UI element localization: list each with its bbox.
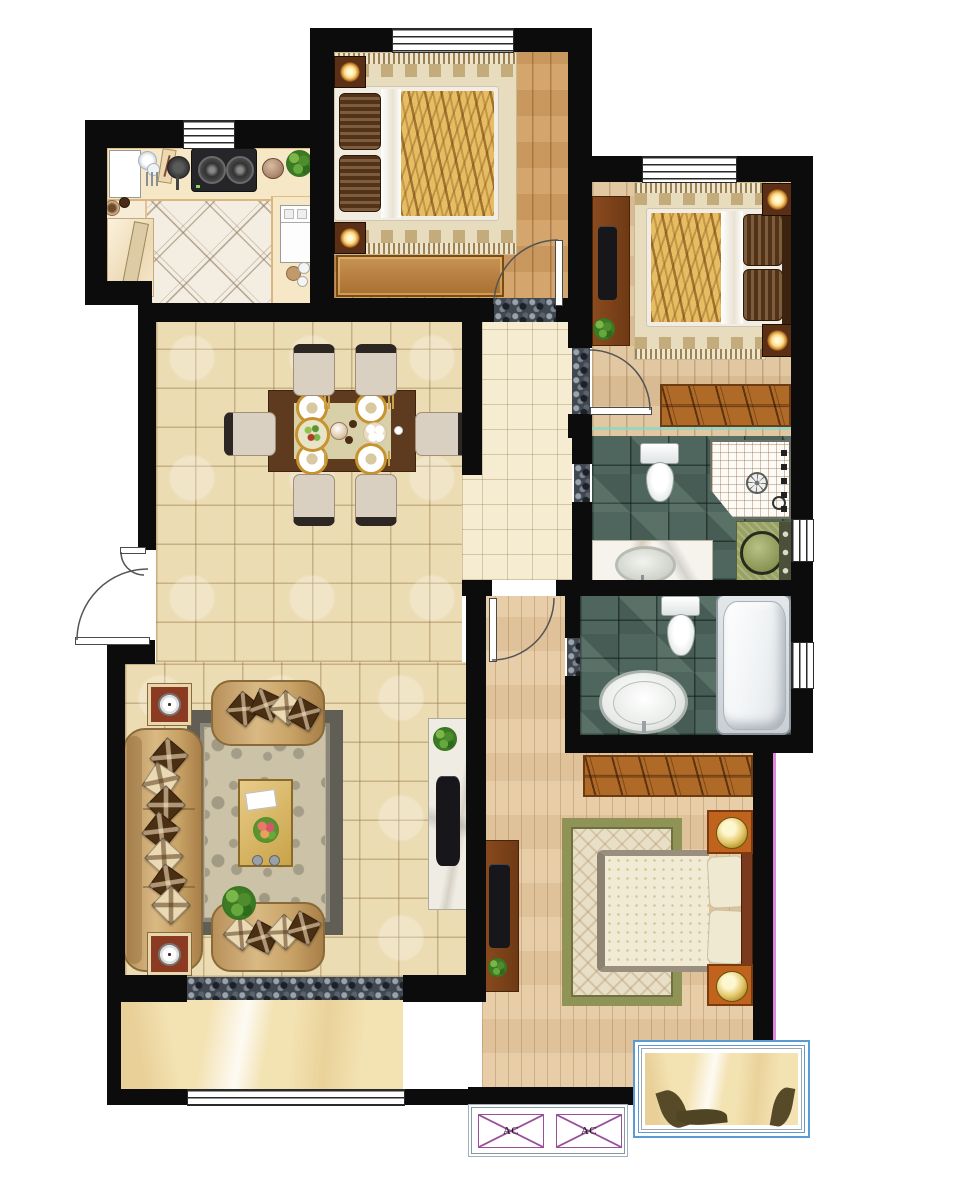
window-bathroom2 [791, 642, 814, 689]
wall-segment [107, 984, 121, 1105]
gold-lamp-icon [716, 971, 748, 1002]
living-plant-icon [222, 886, 256, 920]
small-dish-icon [394, 426, 403, 435]
toilet-tank [640, 443, 679, 464]
indicator-light-icon [196, 185, 200, 188]
wall-segment [152, 303, 334, 322]
wall-segment [568, 414, 592, 438]
bed-headboard [741, 850, 753, 974]
cabinet-plant-icon [433, 727, 457, 751]
wall-segment [462, 298, 482, 475]
washer-drum-icon [740, 531, 784, 575]
bed-right [646, 208, 793, 327]
cutlery-icon [324, 394, 326, 409]
dining-chair [224, 412, 276, 456]
window-balcony-left [187, 1089, 405, 1106]
bed-blanket-tiger [401, 91, 494, 216]
lamp-icon [340, 228, 360, 248]
threshold [494, 298, 556, 322]
apartment-floor-plan: AC AC [0, 0, 960, 1200]
dresser [336, 255, 504, 297]
bed-top [334, 86, 499, 221]
threshold [187, 977, 403, 1000]
bed-pillow-icon [339, 93, 381, 150]
wall-segment [85, 120, 107, 287]
rug-band [635, 337, 765, 349]
washing-machine [736, 521, 793, 584]
wall-segment [85, 281, 152, 305]
wardrobe [660, 384, 791, 427]
vanity-counter [592, 540, 713, 585]
cutlery-icon [392, 394, 394, 409]
bed-sheet-band [381, 89, 401, 218]
balcony-right-floor [645, 1053, 798, 1125]
salad-bowl-icon [295, 417, 330, 452]
bed-pillow-icon [743, 214, 783, 266]
decor-wheel-icon [158, 693, 181, 716]
window-bathroom1 [791, 519, 814, 562]
nightstand [762, 324, 793, 357]
lamp-icon [767, 330, 788, 351]
wall-segment [322, 28, 392, 52]
kitchen-plant-icon [286, 150, 313, 177]
kitchen-tile-floor [145, 198, 275, 307]
tv-icon [436, 776, 460, 866]
nightstand [334, 222, 366, 254]
bed-pillow-icon [339, 155, 381, 212]
dining-chair [293, 474, 335, 526]
faucet-icon [642, 721, 646, 733]
dinner-plate-icon [355, 392, 387, 424]
dining-chair [355, 344, 397, 396]
cutlery-icon [324, 451, 326, 466]
bed-pillow-icon [707, 855, 746, 909]
burner-icon [226, 156, 254, 184]
desk-plant-icon [593, 318, 615, 340]
buns-plate-icon [363, 422, 387, 444]
master-bed-blanket [597, 850, 709, 972]
wall-segment [466, 596, 486, 988]
dining-table [268, 390, 416, 472]
dining-chair [415, 412, 467, 456]
bed-sheet-band [721, 211, 743, 324]
wall-segment [107, 1089, 187, 1105]
entry-door-small-leaf [120, 547, 146, 554]
tv-icon [489, 864, 510, 948]
window-bedroom-right [642, 156, 737, 183]
table-wheel-icon [269, 855, 280, 866]
coffee-table [238, 779, 293, 867]
entry-door-leaf [75, 637, 150, 645]
dining-chair [293, 344, 335, 396]
wall-segment [565, 596, 580, 638]
rug-band [635, 193, 765, 205]
dinner-plate-icon [355, 443, 387, 475]
hallway-floor [482, 322, 572, 580]
balcony-left-floor [121, 1000, 403, 1089]
wall-segment [580, 580, 791, 596]
fridge-detail [297, 209, 307, 219]
nightstand-master [707, 964, 753, 1006]
wall-segment [310, 28, 334, 310]
window-frame-line [773, 753, 776, 1052]
leaf-decor-icon [655, 1086, 690, 1131]
bed-pillow-icon [743, 269, 783, 321]
wall-segment [735, 156, 813, 182]
ac-platform-frame: AC AC [468, 1104, 628, 1157]
wall-segment [107, 975, 187, 1002]
cup-icon [345, 436, 353, 444]
gas-cooktop-icon [191, 148, 257, 192]
leaf-decor-icon [770, 1086, 796, 1129]
threshold [572, 348, 590, 414]
lamp-icon [340, 62, 360, 82]
utensils-icon [146, 172, 160, 186]
bedroom-right-door-leaf [590, 407, 652, 415]
wall-segment [791, 560, 813, 642]
wall-segment [138, 305, 156, 550]
wall-segment [565, 735, 813, 753]
pan-handle-icon [176, 176, 179, 190]
bedroom-top-door-leaf [555, 240, 563, 306]
shower-head-icon [746, 472, 768, 494]
rug-fringe [635, 349, 765, 359]
ac-unit-2: AC [556, 1114, 622, 1148]
fridge-door-line [281, 222, 312, 223]
pedestal-sink [599, 670, 688, 734]
nightstand [762, 183, 793, 216]
wall-segment [107, 664, 125, 984]
bowl-icon [297, 276, 308, 287]
ac-unit-1: AC [478, 1114, 544, 1148]
wall-segment [568, 180, 592, 348]
bed-pillow-icon [707, 909, 746, 965]
bathtub-basin [723, 601, 786, 730]
sink-icon [615, 546, 676, 584]
refrigerator-icon [280, 205, 313, 263]
window-bedroom-top [392, 28, 514, 53]
gold-lamp-icon [716, 817, 748, 849]
tv-icon [598, 226, 617, 300]
hallway-floor-opening [462, 475, 482, 580]
cutlery-icon [388, 394, 390, 409]
kitchen-sink-unit [109, 150, 141, 198]
bathtub [716, 594, 791, 735]
sink-basin [613, 681, 676, 725]
nightstand [334, 56, 366, 88]
wall-segment [791, 182, 813, 519]
coffee-cup-icon [119, 197, 130, 208]
wall-segment [572, 436, 592, 464]
pot-icon [262, 158, 284, 179]
toilet-tank [661, 596, 700, 616]
lamp-icon [767, 189, 788, 210]
wall-segment [468, 1087, 633, 1105]
dining-chair [355, 474, 397, 526]
decor-wheel-icon [158, 943, 181, 966]
threshold [567, 638, 580, 676]
cup-icon [349, 420, 357, 428]
ac-label: AC [503, 1125, 519, 1137]
rug-fringe [635, 183, 765, 193]
wall-segment [565, 676, 580, 736]
nightstand-master [707, 810, 753, 854]
balcony-right-frame [633, 1040, 810, 1138]
bowl-icon [298, 262, 310, 274]
cutlery-icon [388, 451, 390, 466]
wall-segment [572, 502, 592, 582]
vestibule-door-leaf [489, 598, 497, 662]
side-table [148, 933, 191, 975]
desk-plant-icon [488, 958, 507, 977]
bed-blanket-tiger [651, 213, 721, 322]
wall-segment [462, 580, 492, 596]
wall-segment [580, 156, 642, 182]
fridge-detail [284, 209, 294, 219]
serving-tray-icon [245, 789, 277, 811]
sofa-backrest [127, 736, 142, 964]
burner-icon [198, 156, 226, 184]
ac-label: AC [581, 1125, 597, 1137]
flower-bouquet-icon [253, 817, 279, 843]
side-table [148, 684, 191, 725]
shower-door-track [781, 446, 787, 512]
window-kitchen [183, 120, 235, 149]
wardrobe-master [583, 755, 753, 797]
accent-line [592, 427, 791, 430]
wall-segment [753, 753, 773, 1052]
threshold [574, 464, 590, 502]
table-wheel-icon [252, 855, 263, 866]
cutlery-icon [328, 394, 330, 409]
